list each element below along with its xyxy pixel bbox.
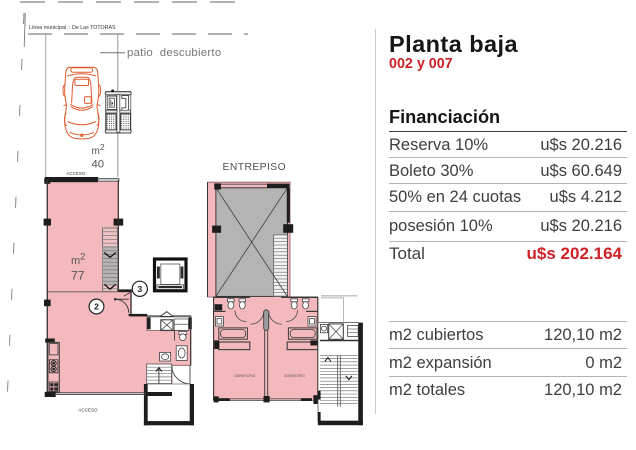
svg-text:m2: m2 (92, 142, 105, 157)
svg-text:77: 77 (71, 269, 85, 283)
svg-text:patio descubierto: patio descubierto (127, 47, 221, 59)
svg-text:2: 2 (94, 302, 99, 312)
svg-text:ACCESO: ACCESO (66, 171, 86, 176)
svg-text:DORMITORIO: DORMITORIO (234, 374, 255, 378)
svg-text:40: 40 (92, 159, 105, 171)
svg-text:3: 3 (137, 284, 142, 294)
svg-text:Línea municipal : De Las TOTO: Línea municipal : De Las TOTORAS (29, 25, 116, 31)
svg-text:DORMITORIO: DORMITORIO (284, 374, 305, 378)
svg-text:ENTREPISO: ENTREPISO (223, 162, 287, 173)
svg-text:ACCESO: ACCESO (78, 408, 98, 413)
